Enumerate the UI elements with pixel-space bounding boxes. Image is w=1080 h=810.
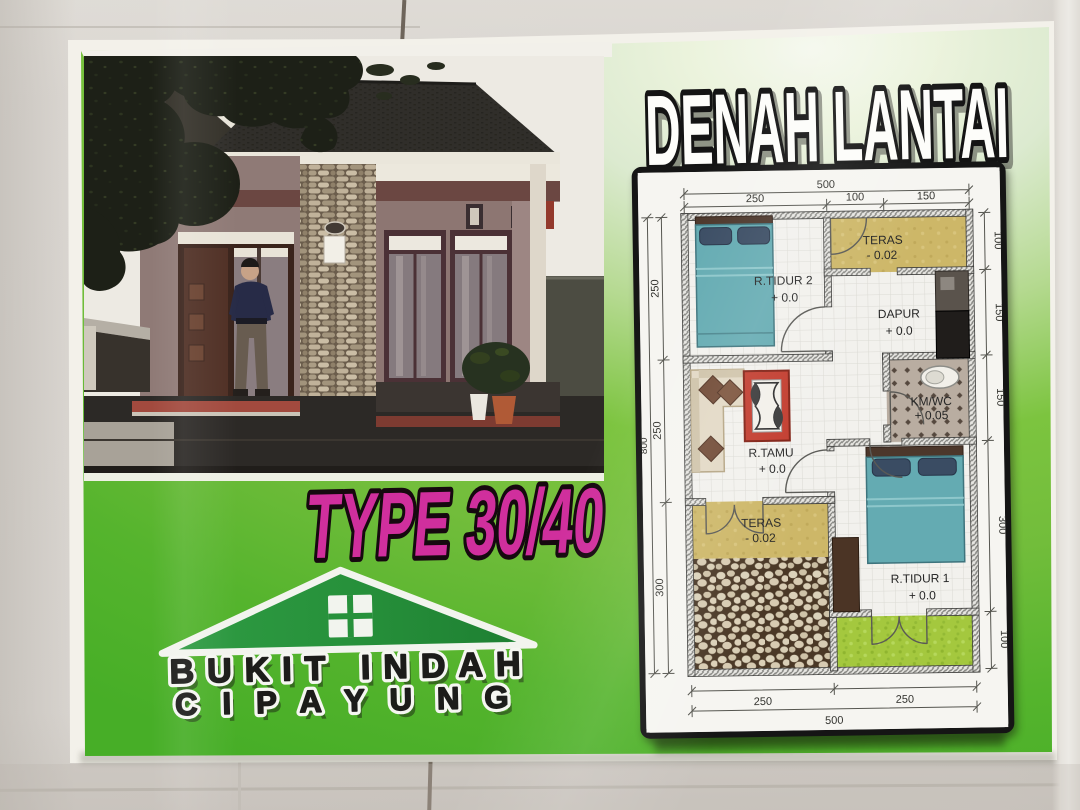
svg-text:+ 0.05: + 0.05 [915,408,949,423]
svg-text:- 0.02: - 0.02 [866,248,897,262]
svg-text:100: 100 [846,191,865,203]
svg-text:R.TAMU: R.TAMU [748,445,793,460]
svg-text:500: 500 [825,715,844,727]
svg-text:300: 300 [996,516,1008,535]
svg-text:+ 0.0: + 0.0 [909,588,937,602]
svg-text:250: 250 [754,696,773,708]
svg-text:150: 150 [994,388,1006,407]
svg-text:800: 800 [639,437,650,454]
svg-text:150: 150 [917,190,936,202]
svg-text:TERAS: TERAS [741,516,781,531]
svg-text:250: 250 [652,421,664,440]
svg-text:DAPUR: DAPUR [878,306,921,321]
svg-text:500: 500 [817,179,836,191]
svg-text:TERAS: TERAS [863,233,903,248]
svg-text:100: 100 [992,231,1004,250]
svg-text:KM/WC: KM/WC [910,394,952,409]
svg-text:R.TIDUR 2: R.TIDUR 2 [754,273,813,288]
svg-text:R.TIDUR 1: R.TIDUR 1 [891,571,950,586]
svg-text:100: 100 [998,630,1009,649]
svg-text:250: 250 [746,193,765,205]
svg-text:+ 0.0: + 0.0 [759,462,787,476]
svg-text:300: 300 [654,578,666,597]
svg-text:+ 0.0: + 0.0 [771,290,799,304]
svg-text:250: 250 [896,694,915,706]
svg-text:150: 150 [993,303,1005,322]
svg-text:+ 0.0: + 0.0 [886,324,914,338]
svg-text:250: 250 [649,279,661,298]
svg-text:- 0.02: - 0.02 [745,531,776,545]
